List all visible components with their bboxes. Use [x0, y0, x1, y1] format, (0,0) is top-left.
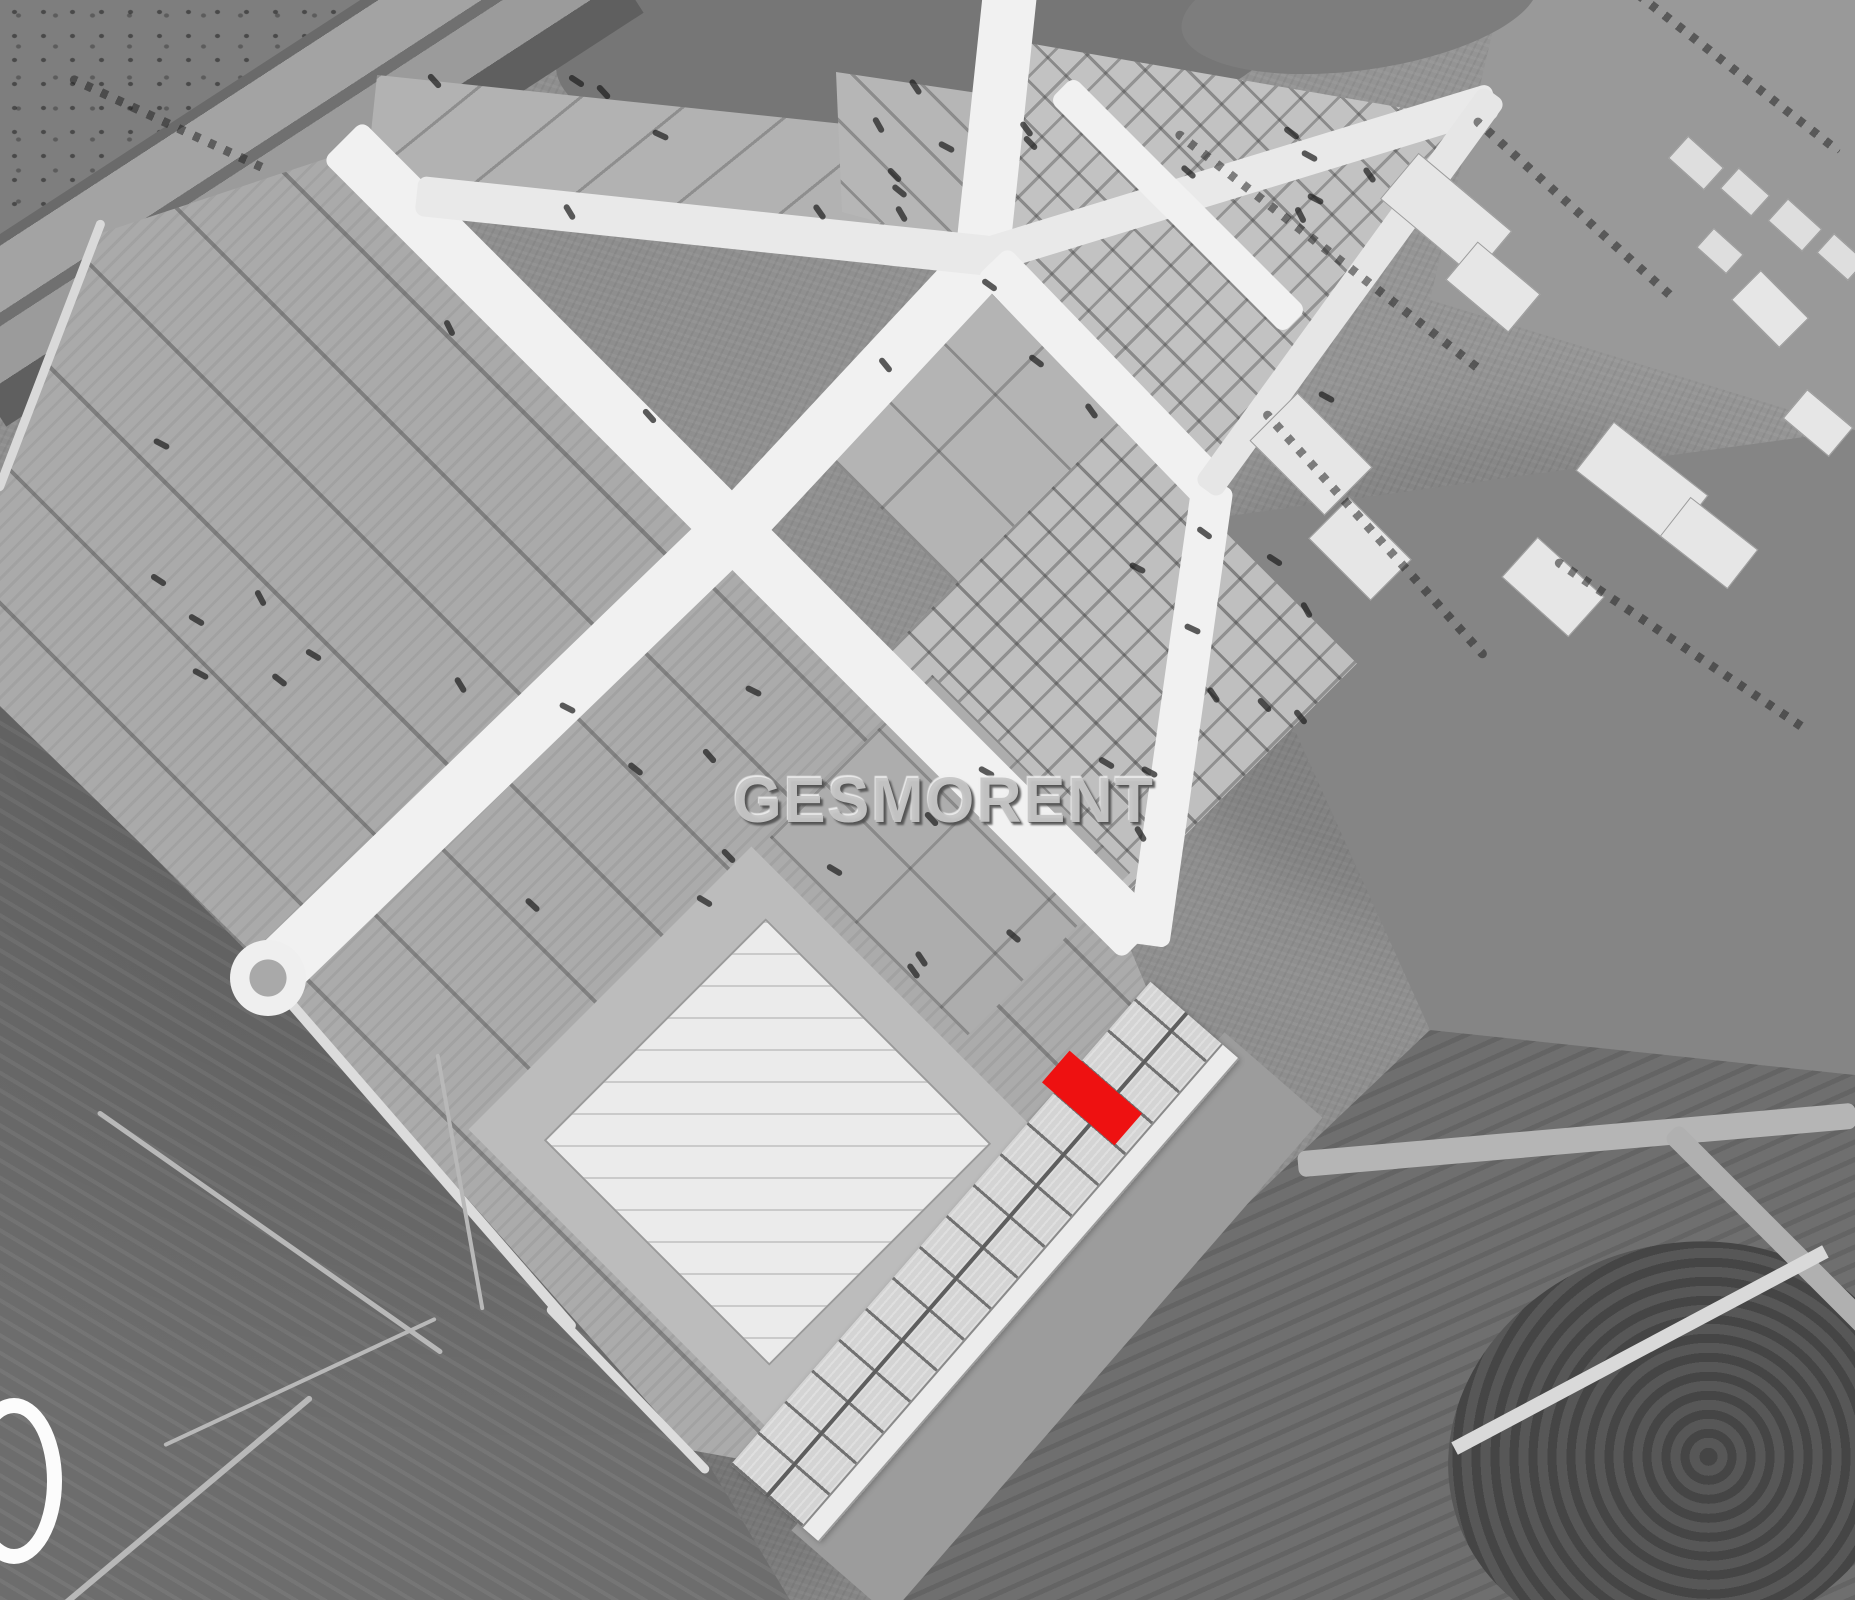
plot-label-dash [980, 278, 997, 293]
plot-label-dash [191, 668, 209, 681]
plot-label-dash [1195, 525, 1212, 540]
plot-label-dash [906, 962, 921, 979]
plot-label-dash [454, 677, 468, 695]
plot-label-dash [1207, 686, 1221, 703]
plot-label-dash [1256, 696, 1272, 712]
aerial-map-image: GESMORENT [0, 0, 1855, 1600]
plot-label-dash [1022, 135, 1038, 151]
plot-label-dash [812, 203, 827, 220]
plot-label-dash [695, 894, 713, 908]
plot-label-dash [702, 747, 718, 764]
plot-label-dash [1180, 164, 1197, 180]
plot-label-dash [1129, 562, 1147, 575]
plot-label-dash [871, 116, 885, 134]
plot-label-dash [567, 73, 584, 87]
plot-label-dash [1362, 167, 1377, 184]
plot-label-dash [1306, 192, 1324, 205]
watermark-text: GESMORENT [733, 763, 1155, 837]
plot-label-dash [895, 205, 909, 223]
plot-label-dash [1006, 929, 1023, 945]
plot-label-dash [1265, 552, 1283, 566]
plot-label-dash [562, 203, 576, 221]
plot-label-dash [1085, 402, 1100, 419]
plot-label-dash [1293, 708, 1308, 725]
plot-label-dash [720, 848, 736, 864]
plot-label-dash [1294, 206, 1307, 224]
plot-label-dash [1019, 121, 1034, 138]
plot-label-dash [443, 319, 456, 337]
plot-label-dash [596, 83, 612, 100]
plot-label-dash [254, 589, 267, 607]
plot-label-dash [887, 167, 903, 183]
plot-label-dash [187, 613, 205, 627]
plot-label-dash [1317, 390, 1335, 403]
plot-label-dash [642, 408, 658, 425]
plot-label-dash [877, 356, 892, 373]
plot-label-dash [652, 128, 670, 141]
plot-label-dash [153, 438, 171, 451]
plot-label-dash [937, 140, 955, 153]
plot-label-dash [908, 78, 922, 95]
plot-label-dash [1299, 601, 1313, 619]
plot-label-dash [426, 72, 442, 89]
plot-label-dash [1283, 125, 1300, 140]
plot-label-dash [627, 761, 644, 776]
plot-label-dash [305, 648, 323, 662]
plot-label-dash [915, 950, 929, 967]
plot-label-dash [1028, 353, 1045, 368]
plot-label-dash [525, 897, 542, 913]
plot-label-dash [1184, 623, 1202, 636]
plot-label-dash [1300, 149, 1318, 162]
plot-label-dash [825, 863, 843, 877]
plot-label-dash [559, 701, 577, 714]
plot-label-dash [744, 684, 762, 697]
plot-label-dash [271, 672, 288, 687]
plot-label-dash [891, 183, 908, 198]
plot-label-dash [150, 573, 167, 587]
